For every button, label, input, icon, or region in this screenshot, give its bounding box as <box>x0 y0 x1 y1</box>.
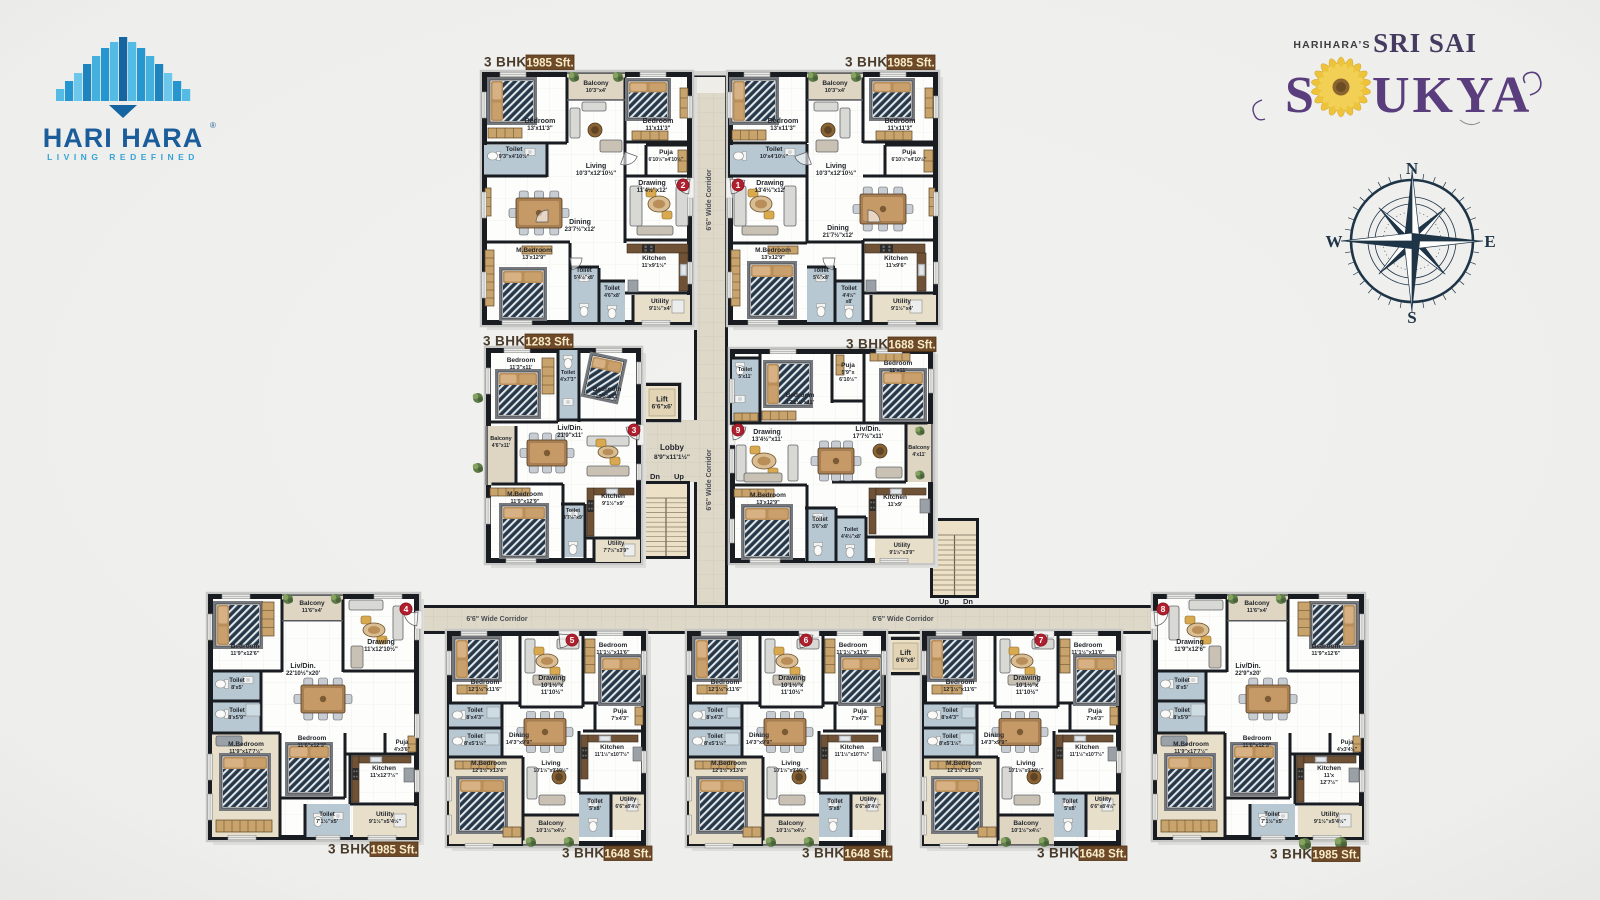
svg-text:Dining: Dining <box>984 732 1004 739</box>
svg-text:1283 Sft.: 1283 Sft. <box>525 337 572 349</box>
svg-text:Toilet: Toilet <box>604 286 620 292</box>
svg-text:Toilet: Toilet <box>467 708 483 714</box>
svg-text:Toilet: Toilet <box>576 268 592 274</box>
svg-text:S: S <box>1407 308 1416 327</box>
svg-text:1648 Sft.: 1648 Sft. <box>844 849 891 861</box>
svg-text:Dining: Dining <box>749 732 769 739</box>
svg-text:M.Bedroom: M.Bedroom <box>507 491 543 498</box>
svg-text:Bedroom: Bedroom <box>1074 642 1103 649</box>
svg-text:Living: Living <box>826 163 847 170</box>
svg-text:6'6" Wide Corridor: 6'6" Wide Corridor <box>706 449 713 511</box>
svg-text:Kitchen: Kitchen <box>1075 744 1099 751</box>
svg-text:Liv/Din.: Liv/Din. <box>855 426 880 433</box>
svg-text:11'10½": 11'10½" <box>1016 689 1038 696</box>
svg-text:3 BHK: 3 BHK <box>562 846 605 861</box>
svg-text:9'1½"x4': 9'1½"x4' <box>891 305 914 312</box>
svg-text:3 BHK: 3 BHK <box>328 842 371 857</box>
svg-text:8'x4'3": 8'x4'3" <box>706 715 724 721</box>
svg-text:13'x12'9": 13'x12'9" <box>522 255 546 261</box>
svg-text:SRI SAI: SRI SAI <box>1373 28 1477 58</box>
svg-text:6'6"x8'4½": 6'6"x8'4½" <box>855 803 881 810</box>
svg-text:11'4½"x12': 11'4½"x12' <box>637 187 668 194</box>
svg-text:Lobby: Lobby <box>660 443 685 452</box>
svg-text:Utility: Utility <box>893 298 911 305</box>
svg-text:9'1½"x5'4½": 9'1½"x5'4½" <box>1314 818 1347 825</box>
svg-text:11'9"x17'7½": 11'9"x17'7½" <box>229 748 263 755</box>
svg-text:Puja: Puja <box>613 708 627 715</box>
svg-text:5: 5 <box>570 635 575 645</box>
svg-text:12'1½"x11': 12'1½"x11' <box>786 399 815 406</box>
svg-text:11'9"x12'6": 11'9"x12'6" <box>231 651 260 657</box>
svg-text:4'x11': 4'x11' <box>912 452 925 458</box>
svg-text:Toilet: Toilet <box>566 508 580 514</box>
svg-text:4'6"x8': 4'6"x8' <box>604 293 620 299</box>
svg-text:9'1½"x3'9": 9'1½"x3'9" <box>889 549 915 556</box>
svg-text:2: 2 <box>681 180 686 190</box>
svg-text:Toilet: Toilet <box>229 678 245 684</box>
svg-text:Toilet: Toilet <box>738 367 752 373</box>
svg-text:x8': x8' <box>846 299 853 305</box>
svg-text:Drawing: Drawing <box>753 429 781 436</box>
svg-text:11'x9': 11'x9' <box>888 502 903 508</box>
svg-text:14'3"x9'9": 14'3"x9'9" <box>981 740 1008 746</box>
svg-text:Drawing: Drawing <box>638 180 666 187</box>
svg-text:Bedroom: Bedroom <box>471 679 500 686</box>
svg-text:Kitchen: Kitchen <box>372 765 396 772</box>
svg-text:3 BHK: 3 BHK <box>1037 846 1080 861</box>
svg-text:Bedroom: Bedroom <box>593 386 622 393</box>
svg-text:9: 9 <box>736 425 741 435</box>
svg-text:4'x7'3": 4'x7'3" <box>560 377 577 383</box>
svg-text:9'1½"x4': 9'1½"x4' <box>649 305 672 312</box>
svg-text:Puja: Puja <box>841 362 855 369</box>
svg-text:11'x12'7½": 11'x12'7½" <box>370 772 398 779</box>
svg-text:1985 Sft.: 1985 Sft. <box>1312 850 1359 862</box>
svg-text:1985 Sft.: 1985 Sft. <box>526 58 573 70</box>
svg-text:22'9"x20': 22'9"x20' <box>1235 671 1261 677</box>
svg-text:10'1½"x4½': 10'1½"x4½' <box>776 827 806 834</box>
svg-text:Lift: Lift <box>656 395 668 404</box>
svg-text:10'1½"x: 10'1½"x <box>1016 682 1039 689</box>
svg-text:6'10½"x4'10½": 6'10½"x4'10½" <box>892 156 928 163</box>
svg-text:M.Bedroom: M.Bedroom <box>228 741 264 748</box>
svg-text:8'x5'9": 8'x5'9" <box>228 715 246 721</box>
svg-text:Lift: Lift <box>900 650 912 657</box>
svg-text:17'7½"x11': 17'7½"x11' <box>853 433 884 440</box>
svg-text:Balcony: Balcony <box>822 80 848 87</box>
svg-text:8'x5'1½": 8'x5'1½" <box>704 740 726 747</box>
svg-text:3 BHK: 3 BHK <box>484 55 527 70</box>
svg-text:Bedroom: Bedroom <box>839 642 868 649</box>
svg-text:Utility: Utility <box>651 298 669 305</box>
svg-text:6'6" Wide Corridor: 6'6" Wide Corridor <box>466 616 528 623</box>
svg-text:Bedroom: Bedroom <box>231 643 260 650</box>
svg-text:Puja: Puja <box>659 149 673 156</box>
svg-text:3: 3 <box>632 425 637 435</box>
svg-text:9'3"x4'10½": 9'3"x4'10½" <box>499 153 530 160</box>
svg-text:Bedroom: Bedroom <box>946 679 975 686</box>
svg-text:Toilet: Toilet <box>587 799 603 805</box>
svg-text:5'x8': 5'x8' <box>1064 806 1076 812</box>
svg-text:Dining: Dining <box>827 225 849 232</box>
svg-text:Drawing: Drawing <box>778 675 806 682</box>
svg-text:Toilet: Toilet <box>827 799 843 805</box>
svg-text:11'1½"x11'6": 11'1½"x11'6" <box>596 649 630 656</box>
svg-text:11'9"x12'6": 11'9"x12'6" <box>1312 651 1341 657</box>
svg-text:9'1½"x5'4½": 9'1½"x5'4½" <box>369 818 402 825</box>
svg-text:3 BHK: 3 BHK <box>845 55 888 70</box>
svg-text:Dining: Dining <box>509 732 529 739</box>
svg-text:Utility: Utility <box>608 541 625 547</box>
svg-text:22'10½"x20': 22'10½"x20' <box>286 670 321 677</box>
svg-text:7'7½"x3'9": 7'7½"x3'9" <box>603 547 629 554</box>
svg-text:Toilet: Toilet <box>1174 678 1190 684</box>
svg-text:8'x5'1½": 8'x5'1½" <box>464 740 486 747</box>
svg-text:5'6"x8': 5'6"x8' <box>813 275 829 281</box>
svg-text:Bedroom: Bedroom <box>599 642 628 649</box>
svg-text:S: S <box>1285 67 1314 124</box>
svg-text:Toilet: Toilet <box>467 734 483 740</box>
svg-text:12'1½"x11'6": 12'1½"x11'6" <box>708 686 742 693</box>
svg-text:Liv/Din.: Liv/Din. <box>557 425 582 432</box>
svg-text:1985 Sft.: 1985 Sft. <box>370 845 417 857</box>
svg-text:Toilet: Toilet <box>561 370 575 376</box>
svg-text:Puja: Puja <box>396 740 409 746</box>
svg-text:10'1½"x9'10½": 10'1½"x9'10½" <box>1009 767 1045 774</box>
svg-text:11'1½"x10'7½": 11'1½"x10'7½" <box>835 751 870 758</box>
svg-text:Living: Living <box>541 760 560 767</box>
svg-text:4'6"x11': 4'6"x11' <box>492 443 510 449</box>
svg-text:Up: Up <box>939 597 949 606</box>
svg-text:8'x5': 8'x5' <box>231 685 243 691</box>
svg-text:Toilet: Toilet <box>812 517 828 523</box>
svg-text:Kitchen: Kitchen <box>1317 765 1341 772</box>
svg-text:Puja: Puja <box>1341 740 1354 746</box>
svg-text:3 BHK: 3 BHK <box>846 337 889 352</box>
svg-text:Bedroom: Bedroom <box>525 118 556 125</box>
svg-text:Kitchen: Kitchen <box>883 494 907 501</box>
svg-text:13'x11'3": 13'x11'3" <box>527 126 553 132</box>
svg-text:Utility: Utility <box>894 543 911 549</box>
svg-text:5'x8': 5'x8' <box>589 806 601 812</box>
svg-text:Toilet: Toilet <box>844 527 858 533</box>
svg-text:10'3"x12'10½": 10'3"x12'10½" <box>576 170 616 177</box>
svg-text:21'9"x11': 21'9"x11' <box>557 433 583 439</box>
svg-text:23'7½"x12': 23'7½"x12' <box>565 226 596 233</box>
svg-text:10'1½"x: 10'1½"x <box>541 682 564 689</box>
svg-text:Kitchen: Kitchen <box>884 255 908 262</box>
svg-text:1: 1 <box>736 180 741 190</box>
svg-text:Bedroom: Bedroom <box>885 118 916 125</box>
svg-text:Utility: Utility <box>1321 811 1339 818</box>
svg-text:Living: Living <box>1016 760 1035 767</box>
svg-text:7'x4'3": 7'x4'3" <box>851 716 869 722</box>
svg-text:Toilet: Toilet <box>1062 799 1078 805</box>
svg-text:Liv/Din.: Liv/Din. <box>290 663 315 670</box>
svg-text:9'1½"x9': 9'1½"x9' <box>602 500 625 507</box>
svg-text:1648 Sft.: 1648 Sft. <box>604 849 651 861</box>
svg-text:11'9"x17'7½": 11'9"x17'7½" <box>1174 748 1208 755</box>
svg-text:11'9"x12'9": 11'9"x12'9" <box>511 499 540 505</box>
svg-text:Balcony: Balcony <box>538 820 564 827</box>
svg-text:10'3"x12'10½": 10'3"x12'10½" <box>816 170 856 177</box>
svg-text:4'4½"x8': 4'4½"x8' <box>841 533 861 540</box>
svg-text:E: E <box>1484 232 1495 251</box>
svg-text:5'9"x: 5'9"x <box>841 370 855 376</box>
svg-text:Up: Up <box>674 472 684 481</box>
svg-text:14'3"x9'9": 14'3"x9'9" <box>746 740 773 746</box>
svg-text:Bedroom: Bedroom <box>711 679 740 686</box>
svg-text:11'6"x12'3": 11'6"x12'3" <box>1243 743 1272 749</box>
svg-text:10'3"x4': 10'3"x4' <box>586 88 607 94</box>
svg-text:11'9"x12'6": 11'9"x12'6" <box>1174 647 1206 653</box>
svg-text:11'10½": 11'10½" <box>541 689 563 696</box>
svg-text:3 BHK: 3 BHK <box>802 846 845 861</box>
svg-text:11'6"x4': 11'6"x4' <box>1247 608 1268 614</box>
svg-text:6'10½"x4'10½": 6'10½"x4'10½" <box>649 156 685 163</box>
svg-text:1688 Sft.: 1688 Sft. <box>888 340 935 352</box>
svg-text:8'x5': 8'x5' <box>1176 685 1188 691</box>
svg-text:Toilet: Toilet <box>707 734 723 740</box>
svg-text:5'x11': 5'x11' <box>738 374 751 380</box>
svg-text:Living: Living <box>781 760 800 767</box>
svg-text:Bedroom: Bedroom <box>768 118 799 125</box>
svg-text:Utility: Utility <box>1095 797 1112 803</box>
svg-text:Bedroom: Bedroom <box>298 735 327 742</box>
svg-text:6'10½": 6'10½" <box>839 376 857 383</box>
svg-text:4'7½"x9': 4'7½"x9' <box>563 514 583 521</box>
svg-text:M.Bedroom: M.Bedroom <box>750 492 786 499</box>
svg-text:11'x9'6": 11'x9'6" <box>886 263 907 269</box>
svg-text:6'6"x8'4½": 6'6"x8'4½" <box>1090 803 1116 810</box>
svg-text:Bedroom: Bedroom <box>786 392 815 399</box>
svg-text:M.Bedroom: M.Bedroom <box>755 247 791 254</box>
svg-text:10'1½"x4½': 10'1½"x4½' <box>536 827 566 834</box>
svg-text:Utility: Utility <box>860 797 877 803</box>
svg-text:6'6"x6': 6'6"x6' <box>896 658 916 664</box>
svg-text:8'x4'3": 8'x4'3" <box>941 715 959 721</box>
svg-text:4'x3'4½": 4'x3'4½" <box>1337 746 1358 753</box>
svg-text:Dn: Dn <box>650 472 660 481</box>
svg-text:11'3"x11': 11'3"x11' <box>510 365 534 371</box>
svg-text:Balcony: Balcony <box>583 80 609 87</box>
svg-text:W: W <box>1326 232 1343 251</box>
svg-text:12'1½"x13'6": 12'1½"x13'6" <box>472 767 506 774</box>
svg-text:13'4½"x11': 13'4½"x11' <box>752 436 783 443</box>
svg-text:Balcony: Balcony <box>1244 600 1270 607</box>
svg-text:Balcony: Balcony <box>1013 820 1039 827</box>
svg-text:11'1½"x10'7½": 11'1½"x10'7½" <box>595 751 630 758</box>
svg-text:7'x4'3": 7'x4'3" <box>1086 716 1104 722</box>
svg-text:13'4½"x12': 13'4½"x12' <box>755 187 786 194</box>
svg-text:Living: Living <box>586 163 607 170</box>
svg-text:Toilet: Toilet <box>1264 812 1280 818</box>
svg-text:UKYA: UKYA <box>1372 67 1532 124</box>
svg-text:4: 4 <box>404 604 409 614</box>
svg-text:Toilet: Toilet <box>1174 708 1190 714</box>
svg-text:11'x: 11'x <box>1324 773 1335 779</box>
svg-text:Drawing: Drawing <box>367 639 395 646</box>
svg-text:14'3"x9'9": 14'3"x9'9" <box>506 740 533 746</box>
svg-text:Liv/Din.: Liv/Din. <box>1235 663 1260 670</box>
svg-text:12'1½"x13'6": 12'1½"x13'6" <box>712 767 746 774</box>
svg-text:3 BHK: 3 BHK <box>483 334 526 349</box>
svg-text:Toilet: Toilet <box>319 812 335 818</box>
svg-text:Drawing: Drawing <box>1176 639 1204 646</box>
svg-text:11'6"x12'3": 11'6"x12'3" <box>298 743 327 749</box>
svg-text:Kitchen: Kitchen <box>642 255 666 262</box>
svg-text:Bedroom: Bedroom <box>884 360 913 367</box>
svg-text:Toilet: Toilet <box>841 286 857 292</box>
svg-text:Bedroom: Bedroom <box>1243 735 1272 742</box>
svg-text:Kitchen: Kitchen <box>601 493 625 500</box>
svg-text:7'1½"x5': 7'1½"x5' <box>316 818 339 825</box>
svg-text:8'x5'9": 8'x5'9" <box>1173 715 1191 721</box>
svg-text:12'1½"x13'6": 12'1½"x13'6" <box>947 767 981 774</box>
svg-text:Drawing: Drawing <box>538 675 566 682</box>
svg-text:N: N <box>1406 159 1419 178</box>
svg-text:Balcony: Balcony <box>778 820 804 827</box>
svg-text:11'6"x4': 11'6"x4' <box>302 608 323 614</box>
svg-text:Toilet: Toilet <box>813 268 829 274</box>
svg-text:Toilet: Toilet <box>942 708 958 714</box>
svg-text:11'1½"x11'6": 11'1½"x11'6" <box>1071 649 1105 656</box>
svg-text:®: ® <box>210 121 216 130</box>
svg-text:8'x5'1½": 8'x5'1½" <box>939 740 961 747</box>
svg-text:11'1½"x10'7½": 11'1½"x10'7½" <box>1070 751 1105 758</box>
svg-text:4'x3'6": 4'x3'6" <box>394 747 411 753</box>
svg-text:7: 7 <box>1039 635 1044 645</box>
svg-text:M.Bedroom: M.Bedroom <box>471 760 507 767</box>
svg-text:Toilet: Toilet <box>942 734 958 740</box>
svg-text:5'6"x8': 5'6"x8' <box>812 524 828 530</box>
svg-text:5'4½"x8': 5'4½"x8' <box>574 274 594 281</box>
svg-text:Bedroom: Bedroom <box>1312 643 1341 650</box>
svg-text:10'x4'10½": 10'x4'10½" <box>760 153 789 160</box>
svg-text:11'x9'1½": 11'x9'1½" <box>642 262 667 269</box>
svg-text:12'1½"x11'6": 12'1½"x11'6" <box>468 686 502 693</box>
svg-text:13'x12'9": 13'x12'9" <box>761 255 785 261</box>
svg-text:Bedroom: Bedroom <box>643 118 674 125</box>
svg-text:3 BHK: 3 BHK <box>1270 847 1313 862</box>
svg-text:Dining: Dining <box>569 219 591 226</box>
svg-text:13'x12'9": 13'x12'9" <box>756 500 780 506</box>
svg-text:7'x4'3": 7'x4'3" <box>611 716 629 722</box>
svg-text:10'1½"x4½': 10'1½"x4½' <box>1011 827 1041 834</box>
svg-text:Balcony: Balcony <box>299 600 325 607</box>
svg-text:Drawing: Drawing <box>1013 675 1041 682</box>
svg-text:Puja: Puja <box>1088 708 1102 715</box>
svg-text:M.Bedroom: M.Bedroom <box>516 247 552 254</box>
svg-text:6'6" Wide Corridor: 6'6" Wide Corridor <box>706 169 713 231</box>
svg-text:Utility: Utility <box>376 811 394 818</box>
svg-text:10'1½"x9'10½": 10'1½"x9'10½" <box>774 767 810 774</box>
svg-text:11'1½"x11'6": 11'1½"x11'6" <box>836 649 870 656</box>
svg-text:6: 6 <box>804 635 809 645</box>
svg-text:12'7½": 12'7½" <box>1320 779 1338 786</box>
svg-text:M.Bedroom: M.Bedroom <box>1173 741 1209 748</box>
svg-text:Toilet: Toilet <box>766 146 784 153</box>
svg-text:Bedroom: Bedroom <box>507 357 536 364</box>
svg-text:Balcony: Balcony <box>490 436 512 442</box>
svg-text:11'x11'3": 11'x11'3" <box>887 126 912 132</box>
svg-text:12'1½"x11'6": 12'1½"x11'6" <box>943 686 977 693</box>
svg-text:6'6"x8'4½": 6'6"x8'4½" <box>615 803 641 810</box>
svg-text:11'x12'10½": 11'x12'10½" <box>364 646 398 653</box>
svg-text:Drawing: Drawing <box>756 180 784 187</box>
svg-text:8'x4'3": 8'x4'3" <box>466 715 484 721</box>
svg-text:11'x11'3": 11'x11'3" <box>645 126 670 132</box>
svg-text:13'x11'3": 13'x11'3" <box>770 126 796 132</box>
svg-text:10'1½"x: 10'1½"x <box>781 682 804 689</box>
svg-text:HARI HARA: HARI HARA <box>43 123 204 153</box>
svg-text:10'3"x4': 10'3"x4' <box>825 88 846 94</box>
svg-text:11'10½": 11'10½" <box>781 689 803 696</box>
svg-text:Utility: Utility <box>620 797 637 803</box>
svg-text:8: 8 <box>1161 604 1166 614</box>
svg-text:1985 Sft.: 1985 Sft. <box>887 58 934 70</box>
svg-text:21'7½"x12': 21'7½"x12' <box>823 232 854 239</box>
svg-text:LIVING REDEFINED: LIVING REDEFINED <box>47 152 199 162</box>
svg-text:6'6"x6': 6'6"x6' <box>652 404 673 411</box>
svg-text:Toilet: Toilet <box>707 708 723 714</box>
svg-text:Puja: Puja <box>853 708 867 715</box>
svg-text:5'x8': 5'x8' <box>829 806 841 812</box>
svg-text:M.Bedroom: M.Bedroom <box>711 760 747 767</box>
svg-text:Toilet: Toilet <box>506 146 524 153</box>
svg-text:6'6" Wide Corridor: 6'6" Wide Corridor <box>872 616 934 623</box>
svg-text:10'3"x11': 10'3"x11' <box>595 394 619 400</box>
svg-text:HARIHARA’S: HARIHARA’S <box>1293 39 1370 51</box>
svg-text:4'4½": 4'4½" <box>842 292 856 299</box>
svg-text:M.Bedroom: M.Bedroom <box>946 760 982 767</box>
svg-text:Balcony: Balcony <box>908 445 930 451</box>
svg-text:Kitchen: Kitchen <box>600 744 624 751</box>
svg-text:11'x11': 11'x11' <box>889 368 907 374</box>
svg-text:Toilet: Toilet <box>229 708 245 714</box>
svg-text:8'9"x11'1½": 8'9"x11'1½" <box>654 453 690 461</box>
svg-text:Dn: Dn <box>963 597 973 606</box>
svg-text:7'1½"x5': 7'1½"x5' <box>1261 818 1284 825</box>
svg-text:Puja: Puja <box>902 149 916 156</box>
svg-text:Kitchen: Kitchen <box>840 744 864 751</box>
svg-text:10'1½"x9'10½": 10'1½"x9'10½" <box>534 767 570 774</box>
svg-text:1648 Sft.: 1648 Sft. <box>1079 849 1126 861</box>
